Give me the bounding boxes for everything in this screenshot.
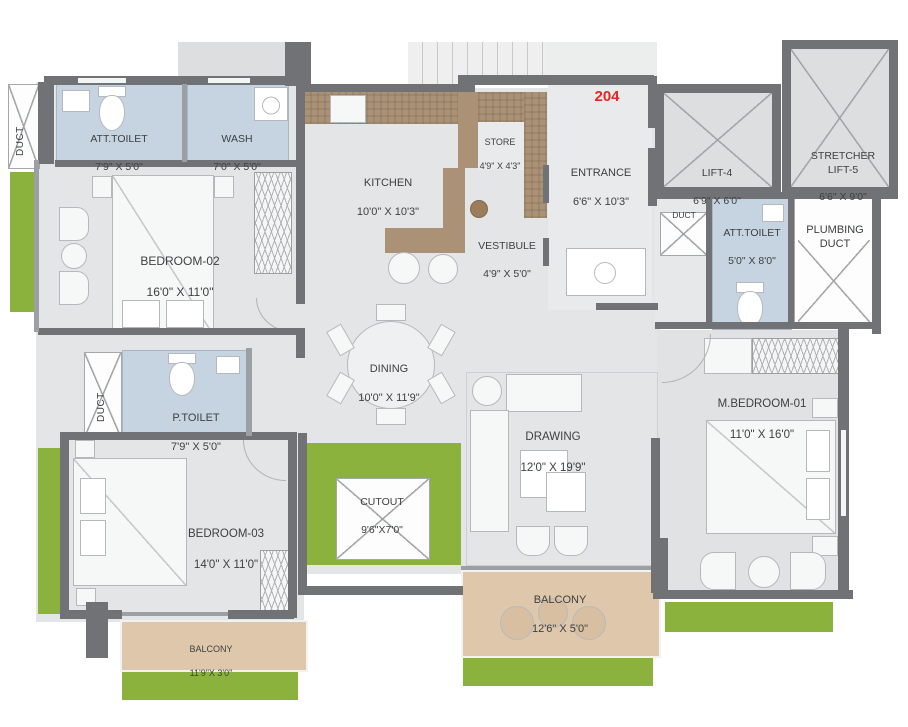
chair-icon bbox=[554, 526, 588, 556]
room-dims: 6'9" X 6'0" bbox=[693, 195, 741, 209]
chair-icon bbox=[700, 552, 736, 590]
room-dims: 4'9" X 5'0" bbox=[478, 268, 536, 282]
wall bbox=[788, 197, 794, 328]
window bbox=[122, 612, 228, 616]
wall bbox=[543, 238, 549, 266]
wall bbox=[296, 76, 305, 304]
room-dims: 5'0" X 8'0" bbox=[723, 255, 780, 269]
room-label-balcony-main: BALCONY 12'6" X 5'0" bbox=[532, 578, 588, 651]
room-label-duct-top-left: DUCT bbox=[15, 104, 26, 156]
room-name: BEDROOM-03 bbox=[188, 527, 264, 542]
room-dims: 10'0" X 11'9" bbox=[358, 391, 419, 406]
room-label-balcony-small: BALCONY 11'9"X 3'0" bbox=[189, 632, 232, 691]
wall bbox=[38, 82, 54, 164]
room-name: P.TOILET bbox=[171, 411, 221, 426]
room-name: VESTIBULE bbox=[478, 240, 536, 254]
room-name: WASH bbox=[213, 133, 261, 147]
room-dims: 16'0" X 11'0" bbox=[140, 285, 219, 301]
pillow-icon bbox=[806, 430, 830, 472]
room-label-drawing: DRAWING 12'0" X 19'9" bbox=[521, 415, 586, 491]
wall bbox=[596, 303, 658, 310]
wardrobe-icon bbox=[752, 338, 840, 374]
room-label-stretcher-lift-5: STRETCHER LIFT-5 6'6" X 9'0" bbox=[811, 136, 875, 219]
pillow-icon bbox=[80, 520, 106, 556]
kitchen-stool-icon bbox=[388, 252, 420, 284]
room-name: DINING bbox=[358, 362, 419, 377]
room-label-duct-lobby: DUCT bbox=[672, 199, 696, 233]
room-label-store: STORE 4'9" X 4'3" bbox=[480, 125, 521, 184]
room-name: ATT.TOILET bbox=[723, 227, 780, 241]
room-label-att-toilet-2: ATT.TOILET 5'0" X 8'0" bbox=[723, 213, 780, 282]
wall bbox=[38, 328, 304, 335]
window bbox=[841, 430, 846, 516]
chair-icon bbox=[59, 207, 89, 241]
wall bbox=[86, 602, 108, 658]
sofa-icon bbox=[470, 410, 509, 532]
room-name: LIFT-4 bbox=[693, 167, 741, 181]
wall bbox=[296, 328, 305, 358]
room-dims: 12'0" X 19'9" bbox=[521, 461, 586, 476]
armchair-icon bbox=[472, 376, 502, 406]
washbasin-icon bbox=[62, 90, 90, 112]
pillow-icon bbox=[80, 478, 106, 514]
washbasin-icon bbox=[216, 356, 240, 374]
wall bbox=[246, 348, 252, 436]
kitchen-counter-low-v bbox=[443, 168, 465, 253]
pillow-icon bbox=[806, 478, 830, 520]
room-label-kitchen: KITCHEN 10'0" X 10'3" bbox=[357, 161, 419, 234]
dining-chair-icon bbox=[376, 304, 406, 321]
dresser-icon bbox=[704, 338, 752, 374]
store-wall-left bbox=[458, 92, 478, 168]
room-dims: 11'9"X 3'0" bbox=[189, 668, 232, 680]
window bbox=[208, 78, 250, 83]
wall bbox=[298, 586, 463, 595]
room-name: DRAWING bbox=[521, 430, 586, 445]
wall bbox=[298, 433, 307, 590]
wall bbox=[648, 148, 657, 206]
room-label-lift-4: LIFT-4 6'9" X 6'0" bbox=[693, 153, 741, 222]
room-name: CUTOUT bbox=[360, 496, 404, 510]
planter-strip-top-left bbox=[10, 172, 36, 312]
room-dims: 7'9" X 5'0" bbox=[90, 161, 147, 175]
kitchen-counter-top bbox=[303, 92, 463, 124]
wall bbox=[648, 76, 657, 128]
planter-strip-master bbox=[665, 602, 833, 632]
room-name: KITCHEN bbox=[357, 176, 419, 191]
wall bbox=[288, 432, 297, 618]
balcony-chair-icon bbox=[500, 606, 534, 640]
washing-machine-icon bbox=[254, 87, 288, 121]
room-dims: 9'6"X7'0" bbox=[360, 524, 404, 538]
room-name: ATT.TOILET bbox=[90, 133, 147, 147]
room-name: ENTRANCE bbox=[571, 166, 632, 181]
side-table-icon bbox=[812, 398, 838, 418]
wall bbox=[182, 84, 187, 162]
wall bbox=[300, 84, 475, 92]
unit-number: 204 bbox=[594, 88, 619, 105]
chair-icon bbox=[516, 526, 550, 556]
room-label-plumbing-duct: PLUMBING DUCT bbox=[806, 208, 863, 266]
room-name: DUCT bbox=[672, 210, 696, 221]
floor-plan-canvas: DUCT ATT.TOILET 7'9" X 5'0" WASH 7'0" X … bbox=[0, 0, 908, 727]
room-name: BEDROOM-02 bbox=[140, 254, 219, 270]
table-icon bbox=[748, 556, 780, 588]
chair-icon bbox=[59, 271, 89, 305]
room-label-p-toilet: P.TOILET 7'9" X 5'0" bbox=[171, 396, 221, 469]
room-label-m-bedroom-01: M.BEDROOM-01 11'0" X 16'0" bbox=[718, 382, 807, 458]
room-label-duct-left: DUCT bbox=[96, 366, 107, 422]
wall bbox=[543, 165, 549, 203]
room-dims: 7'0" X 5'0" bbox=[213, 161, 261, 175]
toilet-icon bbox=[169, 362, 195, 396]
window bbox=[78, 78, 126, 83]
room-name: STORE bbox=[480, 137, 521, 149]
shoe-rack-knob-icon bbox=[594, 262, 616, 284]
side-table-icon bbox=[75, 440, 95, 458]
room-dims: 4'9" X 4'3" bbox=[480, 161, 521, 173]
room-name: BALCONY bbox=[189, 644, 232, 656]
room-dims: 10'0" X 10'3" bbox=[357, 205, 419, 220]
store-counter-top bbox=[478, 92, 524, 122]
room-label-wash: WASH 7'0" X 5'0" bbox=[213, 119, 261, 188]
plant-pot-icon bbox=[470, 200, 488, 218]
room-label-vestibule: VESTIBULE 4'9" X 5'0" bbox=[478, 226, 536, 295]
room-label-entrance: ENTRANCE 6'6" X 10'3" bbox=[571, 151, 632, 224]
room-label-bedroom-02: BEDROOM-02 16'0" X 11'0" bbox=[140, 238, 219, 317]
table-icon bbox=[61, 243, 87, 269]
room-label-att-toilet-1: ATT.TOILET 7'9" X 5'0" bbox=[90, 119, 147, 188]
wall bbox=[228, 610, 294, 619]
wall bbox=[653, 590, 853, 599]
window bbox=[461, 566, 657, 570]
room-dims: 11'0" X 16'0" bbox=[718, 428, 807, 443]
room-name: STRETCHER LIFT-5 bbox=[811, 150, 875, 178]
wall bbox=[458, 75, 654, 85]
room-dims: 6'6" X 10'3" bbox=[571, 195, 632, 210]
room-label-bedroom-03: BEDROOM-03 14'0" X 11'0" bbox=[188, 512, 264, 588]
chair-icon bbox=[790, 552, 826, 590]
room-name: M.BEDROOM-01 bbox=[718, 397, 807, 412]
planter-strip-balcony-main bbox=[463, 658, 653, 686]
room-dims: 7'9" X 5'0" bbox=[171, 440, 221, 455]
room-name: BALCONY bbox=[532, 593, 588, 608]
room-label-dining: DINING 10'0" X 11'9" bbox=[358, 347, 419, 420]
room-label-cutout: CUTOUT 9'6"X7'0" bbox=[360, 482, 404, 551]
room-dims: 12'6" X 5'0" bbox=[532, 622, 588, 637]
kitchen-sink-icon bbox=[330, 95, 366, 123]
kitchen-stool-icon bbox=[428, 254, 458, 284]
sofa-icon bbox=[506, 374, 582, 412]
room-name: PLUMBING DUCT bbox=[806, 223, 863, 252]
wall bbox=[653, 538, 668, 594]
wall bbox=[60, 432, 69, 618]
wall bbox=[34, 160, 39, 332]
room-dims: 6'6" X 9'0" bbox=[811, 191, 875, 205]
room-dims: 14'0" X 11'0" bbox=[188, 558, 264, 573]
